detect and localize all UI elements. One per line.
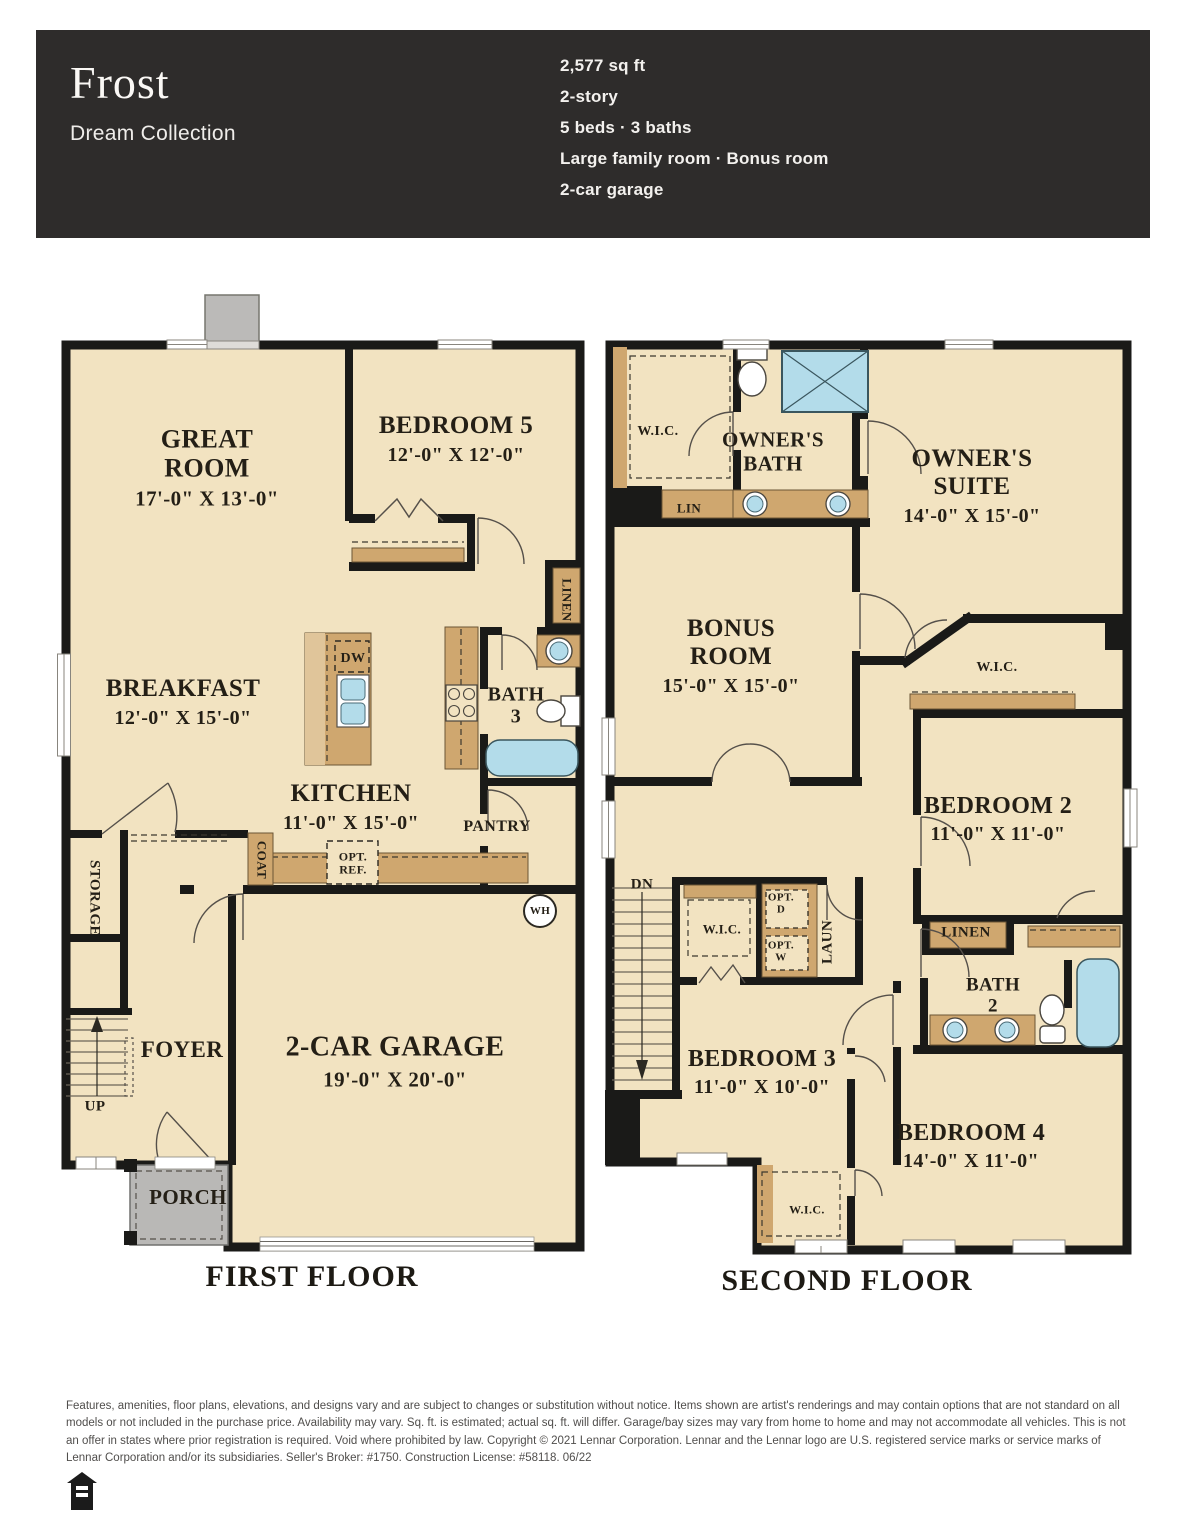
room-dims: 15'-0" X 15'-0" [662, 675, 799, 697]
bathtub [1077, 959, 1119, 1047]
front-door-opening [155, 1157, 215, 1169]
room-label-garage: 2-CAR GARAGE19'-0" X 20'-0" [286, 1032, 505, 1095]
label-opt-ref: OPT. REF. [339, 851, 367, 878]
toilet [1040, 995, 1064, 1025]
label-coat: COAT [254, 841, 269, 879]
room-name: BEDROOM 3 [688, 1046, 836, 1072]
spec-list: 2,577 sq ft 2-story 5 beds · 3 baths Lar… [560, 56, 829, 200]
room-dims: 12'-0" X 15'-0" [114, 707, 251, 729]
room-dims: 14'-0" X 15'-0" [903, 505, 1040, 527]
toilet [738, 362, 766, 396]
room-dims: 12'-0" X 12'-0" [387, 444, 524, 466]
collection-subtitle: Dream Collection [70, 122, 236, 146]
brochure-page: Frost Dream Collection 2,577 sq ft 2-sto… [0, 0, 1187, 1536]
room-name: OWNER'S SUITE [912, 445, 1033, 500]
spec-beds-baths: 5 beds · 3 baths [560, 118, 829, 138]
second-floor-caption: SECOND FLOOR [721, 1264, 972, 1298]
room-name: BREAKFAST [106, 675, 261, 702]
label-wic-owners: W.I.C. [976, 660, 1017, 676]
stairwell-notch [605, 1090, 640, 1165]
label-storage: STORAGE [86, 860, 103, 936]
label-pantry: PANTRY [463, 818, 530, 836]
room-label-bedroom4: BEDROOM 414'-0" X 11'-0" [897, 1120, 1045, 1174]
label-dn: DN [631, 877, 653, 894]
garage-door [260, 1237, 534, 1251]
chimney [205, 295, 259, 347]
room-name: BEDROOM 5 [379, 412, 533, 439]
room-dims: 19'-0" X 20'-0" [323, 1068, 467, 1092]
label-dishwasher: DW [341, 651, 366, 667]
room-dims: 14'-0" X 11'-0" [903, 1150, 1039, 1172]
room-name: GREAT ROOM [161, 424, 254, 482]
room-label-breakfast: BREAKFAST12'-0" X 15'-0" [106, 675, 261, 731]
room-name: 2-CAR GARAGE [286, 1032, 505, 1063]
room-label-bedroom5: BEDROOM 512'-0" X 12'-0" [379, 412, 533, 468]
room-label-bonus: BONUS ROOM15'-0" X 15'-0" [662, 615, 799, 699]
plan-title: Frost [70, 56, 170, 109]
label-opt-d: OPT. D [768, 892, 794, 917]
label-opt-w: OPT. W [768, 940, 794, 965]
label-lin: LIN [677, 502, 701, 517]
spec-garage: 2-car garage [560, 180, 829, 200]
room-label-bath3: BATH 3 [488, 684, 545, 729]
room-label-bath2: BATH 2 [966, 975, 1020, 1018]
bathtub [486, 740, 578, 776]
room-dims: 11'-0" X 10'-0" [694, 1076, 830, 1098]
spec-sqft: 2,577 sq ft [560, 56, 829, 76]
label-wic-owners-bath: W.I.C. [637, 424, 678, 440]
room-name: BEDROOM 2 [924, 793, 1072, 819]
label-wic-bedroom4: W.I.C. [789, 1203, 825, 1216]
room-name: BEDROOM 4 [897, 1120, 1045, 1146]
room-name: KITCHEN [291, 780, 412, 807]
label-up: UP [85, 1099, 106, 1116]
header-banner: Frost Dream Collection 2,577 sq ft 2-sto… [36, 30, 1150, 238]
room-label-bedroom2: BEDROOM 211'-0" X 11'-0" [924, 793, 1072, 847]
label-porch: PORCH [149, 1186, 227, 1210]
label-water-heater: WH [530, 905, 550, 917]
room-label-owners-suite: OWNER'S SUITE14'-0" X 15'-0" [903, 445, 1040, 529]
equal-housing-icon [66, 1470, 98, 1517]
spec-rooms: Large family room · Bonus room [560, 149, 829, 169]
label-laun: LAUN [820, 920, 837, 964]
lower-counter [270, 853, 528, 883]
room-name: BONUS ROOM [687, 615, 775, 670]
label-foyer: FOYER [141, 1037, 224, 1063]
room-dims: 11'-0" X 15'-0" [283, 812, 419, 834]
label-linen-f1: LINEN [559, 578, 574, 621]
room-label-bedroom3: BEDROOM 311'-0" X 10'-0" [688, 1046, 836, 1100]
label-linen-f2: LINEN [941, 925, 991, 942]
room-label-great-room: GREAT ROOM17'-0" X 13'-0" [135, 424, 279, 511]
first-floor-caption: FIRST FLOOR [206, 1260, 419, 1294]
label-wic-hall: W.I.C. [703, 923, 741, 938]
legal-disclaimer: Features, amenities, floor plans, elevat… [66, 1398, 1128, 1467]
spec-stories: 2-story [560, 87, 829, 107]
room-label-owners-bath: OWNER'S BATH [722, 428, 824, 475]
room-dims: 17'-0" X 13'-0" [135, 487, 279, 511]
room-label-kitchen: KITCHEN11'-0" X 15'-0" [283, 780, 419, 836]
room-dims: 11'-0" X 11'-0" [931, 823, 1066, 845]
